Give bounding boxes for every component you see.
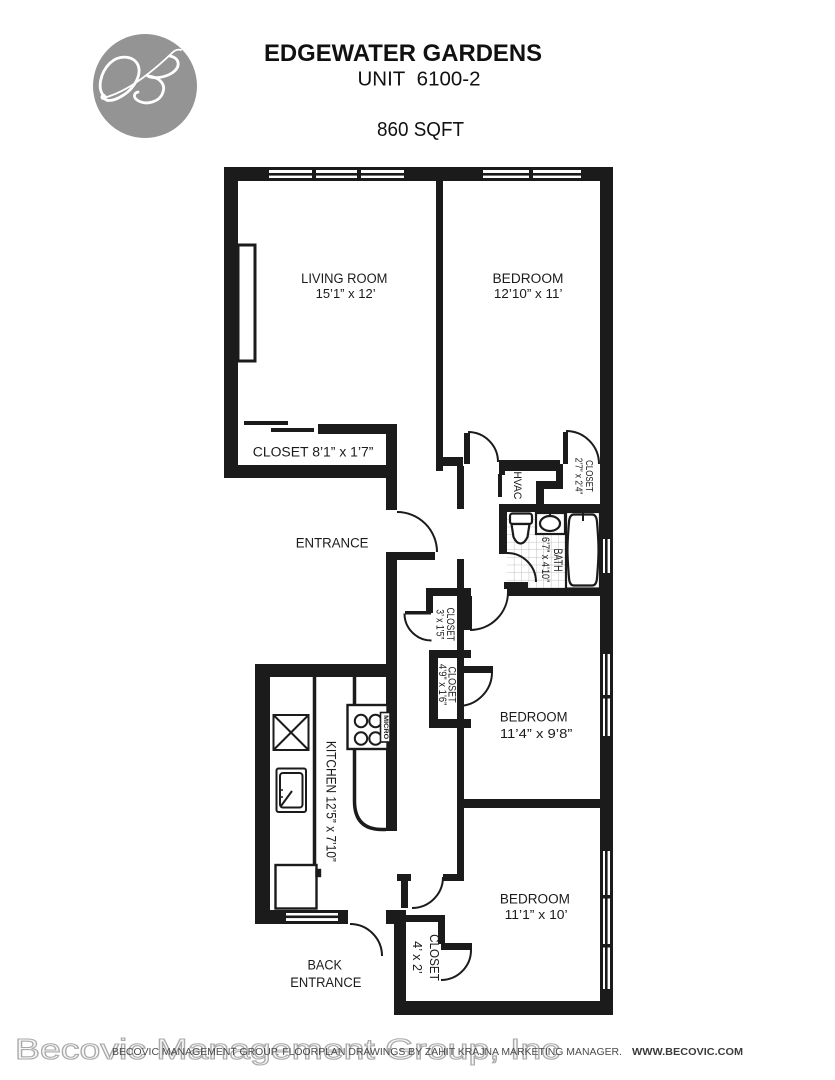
svg-text:BEDROOM: BEDROOM (500, 709, 568, 724)
svg-text:2’7” x 2’4”: 2’7” x 2’4” (573, 458, 585, 495)
svg-text:LIVING ROOM: LIVING ROOM (301, 271, 387, 286)
svg-text:MICRO: MICRO (382, 715, 389, 739)
svg-text:HVAC: HVAC (511, 471, 523, 499)
svg-text:BEDROOM: BEDROOM (493, 271, 564, 286)
svg-text:ENTRANCE: ENTRANCE (290, 975, 361, 990)
svg-text:ENTRANCE: ENTRANCE (296, 536, 369, 551)
svg-text:11’1” x 10’: 11’1” x 10’ (505, 908, 568, 922)
svg-text:CLOSET 8’1” x 1’7”: CLOSET 8’1” x 1’7” (253, 445, 374, 460)
svg-text:KITCHEN 12’5” x 7’10”: KITCHEN 12’5” x 7’10” (323, 741, 338, 862)
svg-text:4’ x 2’: 4’ x 2’ (410, 941, 425, 974)
svg-text:860 SQFT: 860 SQFT (377, 119, 464, 141)
svg-text:BATH: BATH (551, 549, 563, 572)
svg-text:BACK: BACK (308, 958, 342, 973)
svg-text:11’4” x 9’8”: 11’4” x 9’8” (500, 727, 572, 741)
svg-text:BEDROOM: BEDROOM (500, 892, 570, 907)
svg-text:4’9” x 1’6”: 4’9” x 1’6” (436, 664, 448, 706)
svg-text:WWW.BECOVIC.COM: WWW.BECOVIC.COM (632, 1046, 743, 1058)
svg-text:6’7” x 4’10”: 6’7” x 4’10” (539, 537, 551, 582)
svg-text:UNIT 6100-2: UNIT 6100-2 (358, 69, 481, 91)
svg-text:3’ x 1’5”: 3’ x 1’5” (434, 609, 446, 639)
svg-text:12’10” x 11’: 12’10” x 11’ (494, 287, 563, 301)
svg-text:BECOVIC MANAGEMENT GROUP. FLO: BECOVIC MANAGEMENT GROUP. FLOORPLAN DRAW… (112, 1047, 622, 1058)
svg-text:15’1” x 12’: 15’1” x 12’ (316, 287, 376, 301)
svg-text:CLOSET: CLOSET (427, 934, 442, 981)
svg-text:EDGEWATER GARDENS: EDGEWATER GARDENS (264, 40, 542, 67)
